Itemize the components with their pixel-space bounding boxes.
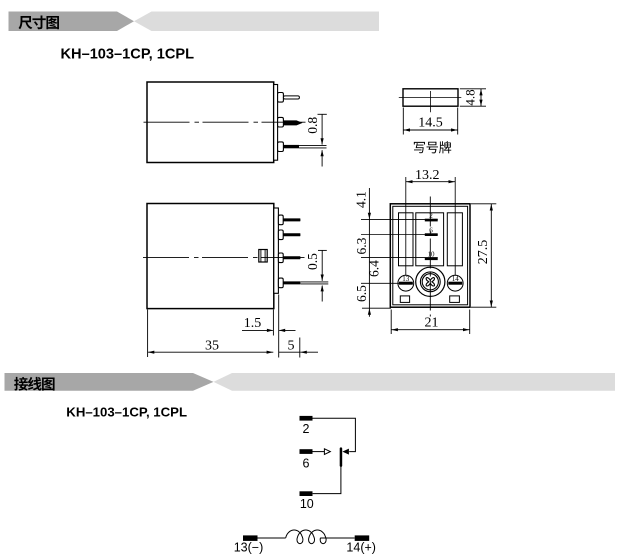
- svg-text:14(+): 14(+): [346, 541, 376, 555]
- svg-text:0.8: 0.8: [305, 117, 320, 134]
- svg-text:35: 35: [205, 339, 219, 354]
- svg-text:1.5: 1.5: [244, 316, 262, 331]
- svg-text:10: 10: [300, 497, 314, 511]
- svg-text:5: 5: [288, 339, 295, 354]
- svg-text:6.3: 6.3: [354, 237, 369, 254]
- svg-text:4.1: 4.1: [353, 191, 368, 208]
- svg-text:6: 6: [303, 456, 310, 470]
- svg-text:27.5: 27.5: [476, 240, 491, 265]
- svg-text:6.4: 6.4: [366, 260, 381, 277]
- svg-text:2: 2: [303, 422, 310, 436]
- svg-text:21: 21: [425, 316, 439, 331]
- svg-text:4.8: 4.8: [462, 89, 477, 105]
- svg-text:14.5: 14.5: [418, 115, 443, 130]
- svg-text:6.5: 6.5: [354, 285, 369, 302]
- svg-text:KH–103–1CP, 1CPL: KH–103–1CP, 1CPL: [66, 404, 187, 419]
- svg-text:KH–103–1CP, 1CPL: KH–103–1CP, 1CPL: [61, 47, 195, 63]
- svg-text:0.5: 0.5: [305, 253, 320, 270]
- svg-text:13(−): 13(−): [234, 541, 264, 555]
- svg-text:13.2: 13.2: [415, 168, 440, 183]
